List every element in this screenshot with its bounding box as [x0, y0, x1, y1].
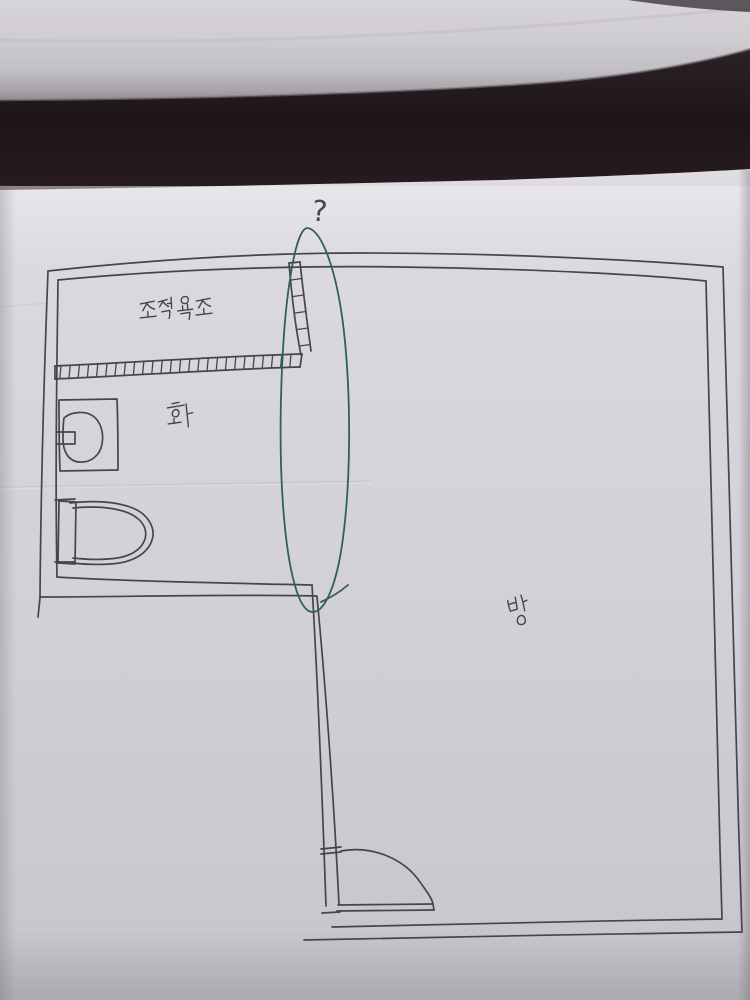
- door-leaf-bottom-line: [337, 910, 434, 911]
- toilet-wall-tick-upper: [55, 499, 75, 500]
- paper-bottom-shade: [0, 930, 750, 1000]
- door-jamb-tick-lower: [322, 912, 340, 913]
- sketch-canvas: ?: [0, 0, 750, 1000]
- door-leaf-top-line: [338, 904, 433, 905]
- question-mark: ?: [310, 194, 328, 229]
- sketch-paper: [0, 169, 750, 1000]
- paper-left-edge-shade: [0, 185, 16, 1000]
- paper-light-band: [0, 186, 750, 266]
- floorplan-photo: ? 조적욕조 화 방: [0, 0, 750, 1000]
- door-leaf-end-cap: [433, 904, 434, 910]
- paper-sheet: [0, 169, 750, 1000]
- tub-stub-wall-top-cap: [289, 262, 300, 263]
